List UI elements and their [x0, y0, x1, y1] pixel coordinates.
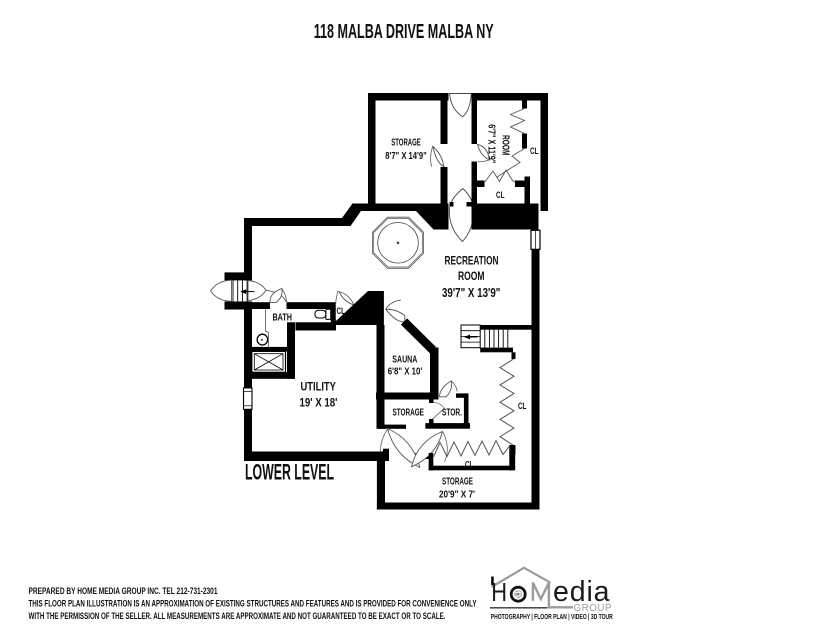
svg-text:STORAGE: STORAGE	[392, 408, 424, 419]
svg-text:THIS FLOOR PLAN ILLUSTRATION I: THIS FLOOR PLAN ILLUSTRATION IS AN APPRO…	[29, 598, 478, 608]
svg-text:6'8" X 10': 6'8" X 10'	[388, 366, 423, 378]
svg-text:20'9" X 7': 20'9" X 7'	[439, 489, 475, 500]
svg-text:BATH: BATH	[272, 312, 292, 323]
svg-text:39'7" X 13'9": 39'7" X 13'9"	[442, 286, 501, 300]
svg-text:6'7" X 11'9": 6'7" X 11'9"	[486, 124, 497, 163]
svg-text:PHOTOGRAPHY | FLOOR PLAN | VID: PHOTOGRAPHY | FLOOR PLAN | VIDEO | 3D TO…	[491, 612, 613, 621]
svg-text:RECREATION: RECREATION	[445, 253, 499, 267]
svg-text:STOR.: STOR.	[442, 408, 462, 419]
svg-text:UTILITY: UTILITY	[300, 381, 336, 393]
svg-text:CL: CL	[465, 459, 474, 470]
svg-text:LOWER LEVEL: LOWER LEVEL	[245, 460, 334, 485]
svg-text:8'7" X 14'9": 8'7" X 14'9"	[385, 151, 427, 162]
svg-text:STORAGE: STORAGE	[442, 477, 473, 488]
svg-text:118 MALBA DRIVE MALBA NY: 118 MALBA DRIVE MALBA NY	[314, 20, 494, 43]
svg-text:CL: CL	[496, 190, 505, 201]
svg-text:19' X 18': 19' X 18'	[300, 397, 338, 409]
svg-text:STORAGE: STORAGE	[391, 138, 421, 149]
svg-text:SAUNA: SAUNA	[392, 354, 417, 366]
svg-text:H: H	[491, 579, 507, 607]
svg-text:CL: CL	[530, 146, 539, 157]
svg-text:PREPARED BY HOME MEDIA GROUP: PREPARED BY HOME MEDIA GROUP INC. TEL 21…	[29, 586, 218, 596]
svg-text:WITH THE PERMISSION OF THE SEL: WITH THE PERMISSION OF THE SELLER. ALL M…	[29, 611, 446, 621]
svg-text:ROOM: ROOM	[500, 135, 511, 156]
svg-text:ROOM: ROOM	[458, 269, 485, 283]
svg-text:CL: CL	[518, 401, 527, 412]
